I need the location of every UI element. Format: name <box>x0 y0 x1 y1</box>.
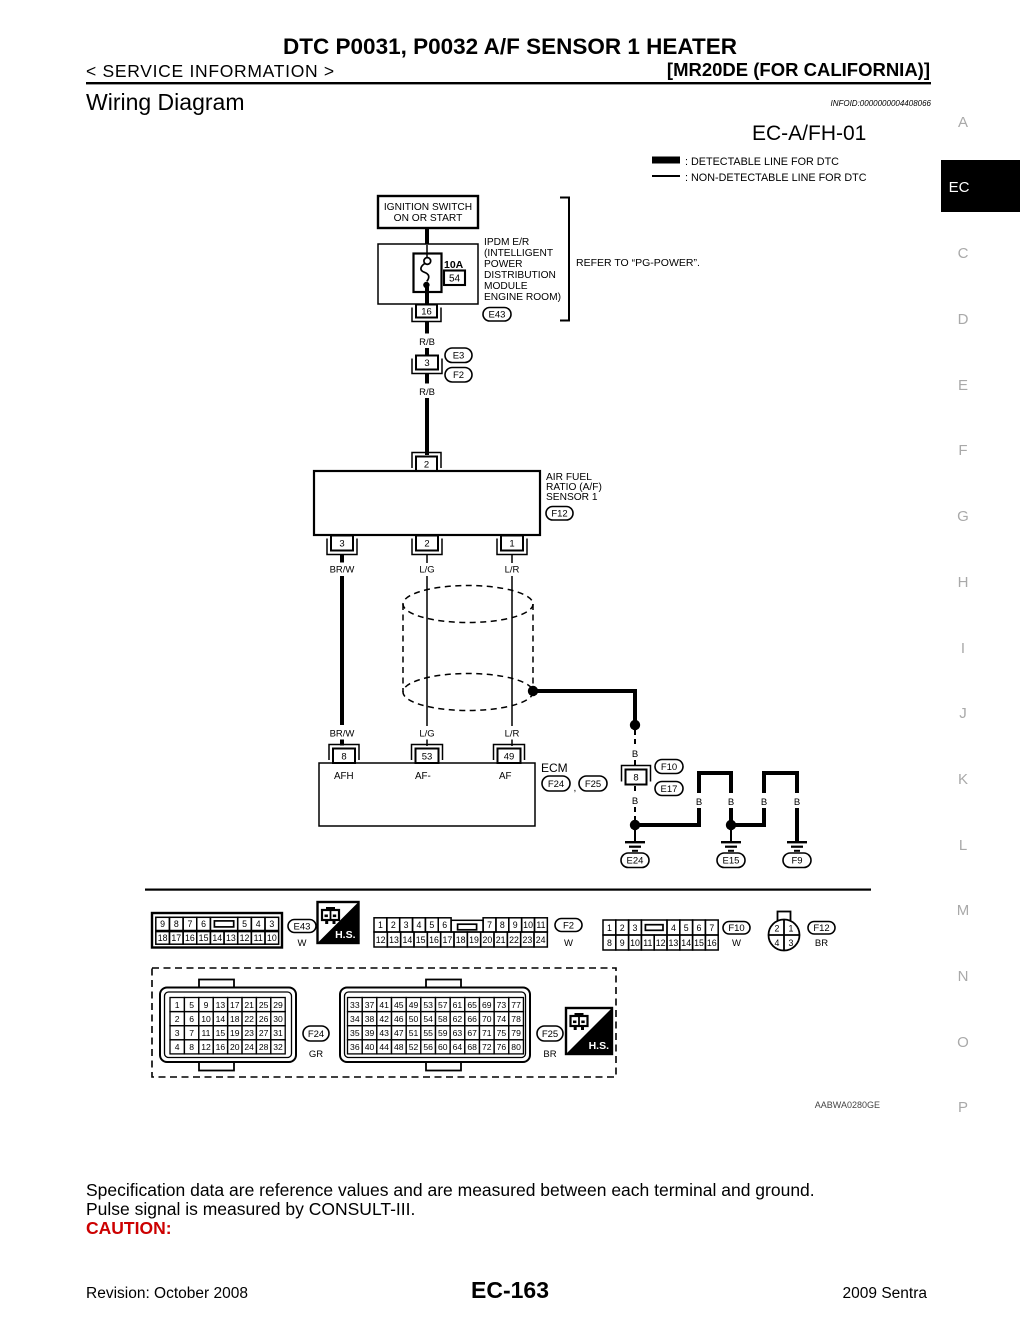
svg-text:E43: E43 <box>489 310 506 321</box>
svg-text:N: N <box>958 968 969 985</box>
svg-text:Pulse signal is measured by CO: Pulse signal is measured by CONSULT-III. <box>86 1199 415 1219</box>
svg-text:D: D <box>958 311 969 328</box>
svg-text:45: 45 <box>394 1000 404 1010</box>
svg-text:AF: AF <box>499 771 512 782</box>
svg-text:: NON-DETECTABLE LINE FOR DTC: : NON-DETECTABLE LINE FOR DTC <box>685 172 867 184</box>
svg-text:F9: F9 <box>791 856 802 867</box>
svg-text:1: 1 <box>175 1000 180 1010</box>
svg-text:10A: 10A <box>444 259 464 271</box>
svg-text:E: E <box>958 377 968 394</box>
svg-text:8: 8 <box>633 773 638 784</box>
svg-text:INFOID:0000000004408066: INFOID:0000000004408066 <box>830 99 931 108</box>
svg-text:61: 61 <box>453 1000 463 1010</box>
svg-text:7: 7 <box>487 920 492 930</box>
svg-text:56: 56 <box>423 1042 433 1052</box>
svg-text:21: 21 <box>244 1000 254 1010</box>
svg-text:55: 55 <box>423 1028 433 1038</box>
svg-text:H.S.: H.S. <box>335 929 356 941</box>
svg-text:18: 18 <box>456 935 466 945</box>
svg-text:73: 73 <box>497 1000 507 1010</box>
svg-text:6: 6 <box>697 923 702 933</box>
svg-text:1: 1 <box>789 924 794 934</box>
svg-text:5: 5 <box>429 920 434 930</box>
svg-text:77: 77 <box>511 1000 521 1010</box>
svg-text:B: B <box>632 796 638 807</box>
svg-text:5: 5 <box>684 923 689 933</box>
svg-text:23: 23 <box>522 935 532 945</box>
svg-text:2: 2 <box>391 920 396 930</box>
svg-text:27: 27 <box>259 1028 269 1038</box>
svg-text:18: 18 <box>230 1014 240 1024</box>
svg-text:9: 9 <box>620 938 625 948</box>
svg-text:12: 12 <box>201 1042 211 1052</box>
svg-text:3: 3 <box>269 919 274 929</box>
svg-text:F25: F25 <box>585 779 601 790</box>
svg-text:12: 12 <box>656 938 666 948</box>
svg-text:60: 60 <box>438 1042 448 1052</box>
svg-text:M: M <box>957 902 970 919</box>
svg-text:29: 29 <box>273 1000 283 1010</box>
svg-text:1: 1 <box>509 539 514 550</box>
svg-text:23: 23 <box>244 1028 254 1038</box>
svg-text:13: 13 <box>216 1000 226 1010</box>
svg-text:49: 49 <box>504 751 515 762</box>
svg-text:ENGINE ROOM): ENGINE ROOM) <box>484 292 561 303</box>
svg-text:19: 19 <box>469 935 479 945</box>
svg-text:F12: F12 <box>813 923 829 934</box>
svg-text:15: 15 <box>216 1028 226 1038</box>
svg-text:62: 62 <box>453 1014 463 1024</box>
svg-text:F12: F12 <box>551 509 567 520</box>
svg-text:80: 80 <box>511 1042 521 1052</box>
svg-text:10: 10 <box>267 933 277 943</box>
svg-text:41: 41 <box>379 1000 389 1010</box>
svg-text:71: 71 <box>482 1028 492 1038</box>
svg-text:2: 2 <box>620 923 625 933</box>
svg-text:11: 11 <box>254 933 263 943</box>
svg-text:6: 6 <box>442 920 447 930</box>
svg-text:F24: F24 <box>308 1029 324 1040</box>
svg-text:3: 3 <box>339 539 344 550</box>
svg-text:13: 13 <box>226 933 236 943</box>
svg-text:8: 8 <box>174 919 179 929</box>
svg-text:4: 4 <box>256 919 261 929</box>
svg-text:25: 25 <box>259 1000 269 1010</box>
svg-text:24: 24 <box>536 935 546 945</box>
svg-text:44: 44 <box>379 1042 389 1052</box>
svg-text:28: 28 <box>259 1042 269 1052</box>
svg-text:F10: F10 <box>728 923 744 934</box>
svg-text:J: J <box>959 705 967 722</box>
svg-text:< SERVICE INFORMATION >: < SERVICE INFORMATION > <box>86 61 335 81</box>
svg-text:22: 22 <box>244 1014 254 1024</box>
svg-text:DISTRIBUTION: DISTRIBUTION <box>484 270 556 281</box>
svg-text:E24: E24 <box>627 856 644 867</box>
svg-text:(INTELLIGENT: (INTELLIGENT <box>484 248 553 259</box>
svg-text:53: 53 <box>422 751 433 762</box>
svg-text:7: 7 <box>187 919 192 929</box>
svg-text:8: 8 <box>607 938 612 948</box>
svg-text:4: 4 <box>417 920 422 930</box>
svg-text:10: 10 <box>201 1014 211 1024</box>
svg-text:Revision: October 2008: Revision: October 2008 <box>86 1285 248 1302</box>
svg-text:79: 79 <box>511 1028 521 1038</box>
svg-text:2: 2 <box>424 459 429 470</box>
svg-text:CAUTION:: CAUTION: <box>86 1218 172 1238</box>
svg-text:: DETECTABLE LINE FOR DTC: : DETECTABLE LINE FOR DTC <box>685 156 839 168</box>
svg-text:9: 9 <box>160 919 165 929</box>
svg-text:K: K <box>958 771 968 788</box>
svg-text:54: 54 <box>449 274 461 285</box>
svg-text:AABWA0280GE: AABWA0280GE <box>815 1100 880 1110</box>
svg-text:GR: GR <box>309 1049 323 1060</box>
svg-text:14: 14 <box>402 935 412 945</box>
svg-text:W: W <box>564 938 573 949</box>
svg-text:40: 40 <box>365 1042 375 1052</box>
svg-text:33: 33 <box>350 1000 360 1010</box>
svg-text:20: 20 <box>230 1042 240 1052</box>
svg-text:35: 35 <box>350 1028 360 1038</box>
svg-text:9: 9 <box>204 1000 209 1010</box>
svg-text:2: 2 <box>175 1014 180 1024</box>
svg-text:57: 57 <box>438 1000 448 1010</box>
svg-text:REFER TO “PG-POWER”.: REFER TO “PG-POWER”. <box>576 257 700 269</box>
svg-text:22: 22 <box>509 935 519 945</box>
svg-text:E17: E17 <box>661 784 678 795</box>
svg-text:O: O <box>957 1034 969 1051</box>
svg-text:11: 11 <box>536 920 545 930</box>
svg-text:30: 30 <box>273 1014 283 1024</box>
svg-text:15: 15 <box>199 933 209 943</box>
svg-text:66: 66 <box>467 1014 477 1024</box>
svg-text:17: 17 <box>442 935 452 945</box>
svg-text:26: 26 <box>259 1014 269 1024</box>
svg-text:54: 54 <box>423 1014 433 1024</box>
svg-text:46: 46 <box>394 1014 404 1024</box>
svg-text:EC-163: EC-163 <box>471 1277 549 1303</box>
svg-text:5: 5 <box>189 1000 194 1010</box>
svg-text:38: 38 <box>365 1014 375 1024</box>
svg-text:58: 58 <box>438 1014 448 1024</box>
svg-text:1: 1 <box>378 920 383 930</box>
svg-text:59: 59 <box>438 1028 448 1038</box>
svg-text:14: 14 <box>212 933 222 943</box>
svg-text:64: 64 <box>453 1042 463 1052</box>
svg-text:IGNITION SWITCH: IGNITION SWITCH <box>384 202 472 213</box>
svg-text:H: H <box>958 574 969 591</box>
svg-text:R/B: R/B <box>419 337 435 348</box>
svg-text:7: 7 <box>709 923 714 933</box>
svg-text:16: 16 <box>216 1042 226 1052</box>
svg-text:MODULE: MODULE <box>484 281 528 292</box>
svg-text:6: 6 <box>189 1014 194 1024</box>
svg-text:B: B <box>794 797 800 808</box>
svg-text:31: 31 <box>273 1028 283 1038</box>
svg-text:8: 8 <box>500 920 505 930</box>
svg-text:B: B <box>728 797 734 808</box>
svg-text:B: B <box>696 797 702 808</box>
svg-text:ECM: ECM <box>541 761 568 775</box>
svg-text:15: 15 <box>416 935 426 945</box>
svg-text:L/G: L/G <box>419 565 434 576</box>
svg-text:B: B <box>632 749 638 760</box>
svg-text:13: 13 <box>669 938 679 948</box>
svg-text:16: 16 <box>421 307 432 318</box>
svg-text:10: 10 <box>523 920 533 930</box>
svg-text:43: 43 <box>379 1028 389 1038</box>
svg-text:7: 7 <box>189 1028 194 1038</box>
svg-text:24: 24 <box>244 1042 254 1052</box>
svg-text:10: 10 <box>630 938 640 948</box>
svg-text:16: 16 <box>185 933 195 943</box>
svg-text:L/G: L/G <box>419 729 434 740</box>
svg-text:20: 20 <box>482 935 492 945</box>
svg-text:3: 3 <box>789 938 794 948</box>
svg-text:76: 76 <box>497 1042 507 1052</box>
svg-text:BR: BR <box>543 1049 556 1060</box>
svg-text:65: 65 <box>467 1000 477 1010</box>
svg-text:AFH: AFH <box>334 771 354 782</box>
svg-text:F2: F2 <box>563 920 574 931</box>
svg-text:L/R: L/R <box>505 565 520 576</box>
svg-text:8: 8 <box>341 751 346 762</box>
svg-text:Specification data are referen: Specification data are reference values … <box>86 1180 815 1200</box>
svg-text:11: 11 <box>643 938 652 948</box>
svg-text:F10: F10 <box>661 762 677 773</box>
svg-text:I: I <box>961 640 965 657</box>
svg-text:50: 50 <box>409 1014 419 1024</box>
svg-text:2009 Sentra: 2009 Sentra <box>843 1285 928 1302</box>
svg-text:48: 48 <box>394 1042 404 1052</box>
svg-text:42: 42 <box>379 1014 389 1024</box>
svg-text:E43: E43 <box>294 921 311 932</box>
svg-text:L/R: L/R <box>505 729 520 740</box>
svg-text:BR/W: BR/W <box>330 565 355 576</box>
svg-text:19: 19 <box>230 1028 240 1038</box>
svg-text:3: 3 <box>633 923 638 933</box>
svg-text:BR/W: BR/W <box>330 729 355 740</box>
svg-text:Wiring Diagram: Wiring Diagram <box>86 89 244 115</box>
svg-text:32: 32 <box>273 1042 283 1052</box>
svg-text:70: 70 <box>482 1014 492 1024</box>
svg-text:47: 47 <box>394 1028 404 1038</box>
svg-text:BR: BR <box>815 938 828 949</box>
svg-text:68: 68 <box>467 1042 477 1052</box>
svg-text:15: 15 <box>694 938 704 948</box>
svg-text:R/B: R/B <box>419 387 435 398</box>
svg-text:49: 49 <box>409 1000 419 1010</box>
svg-text:16: 16 <box>707 938 717 948</box>
svg-text:L: L <box>959 837 967 854</box>
svg-text:B: B <box>761 797 767 808</box>
svg-text:F: F <box>958 442 967 459</box>
svg-text:51: 51 <box>409 1028 419 1038</box>
svg-text:E15: E15 <box>723 856 740 867</box>
svg-text:9: 9 <box>513 920 518 930</box>
svg-text:2: 2 <box>424 539 429 550</box>
svg-text:4: 4 <box>671 923 676 933</box>
svg-text:17: 17 <box>171 933 181 943</box>
svg-text:IPDM E/R: IPDM E/R <box>484 237 529 248</box>
svg-text:18: 18 <box>158 933 168 943</box>
svg-text:5: 5 <box>242 919 247 929</box>
svg-text:E3: E3 <box>453 351 465 362</box>
svg-text:13: 13 <box>389 935 399 945</box>
svg-text:14: 14 <box>681 938 691 948</box>
svg-text:P: P <box>958 1099 968 1116</box>
svg-text:2: 2 <box>775 924 780 934</box>
svg-text:75: 75 <box>497 1028 507 1038</box>
svg-text:,: , <box>574 783 577 794</box>
svg-text:DTC P0031, P0032 A/F SENSOR 1: DTC P0031, P0032 A/F SENSOR 1 HEATER <box>283 34 737 59</box>
svg-text:4: 4 <box>775 938 780 948</box>
svg-text:POWER: POWER <box>484 259 523 270</box>
svg-text:63: 63 <box>453 1028 463 1038</box>
svg-text:F24: F24 <box>548 779 564 790</box>
svg-text:[MR20DE (FOR CALIFORNIA)]: [MR20DE (FOR CALIFORNIA)] <box>667 59 930 80</box>
svg-text:G: G <box>957 508 969 525</box>
svg-text:14: 14 <box>216 1014 226 1024</box>
svg-text:1: 1 <box>607 923 612 933</box>
svg-text:3: 3 <box>424 358 429 369</box>
svg-text:39: 39 <box>365 1028 375 1038</box>
svg-text:69: 69 <box>482 1000 492 1010</box>
svg-text:A: A <box>958 114 968 131</box>
svg-text:ON OR START: ON OR START <box>394 213 463 224</box>
svg-text:53: 53 <box>423 1000 433 1010</box>
svg-text:8: 8 <box>189 1042 194 1052</box>
svg-text:W: W <box>298 938 307 949</box>
svg-text:34: 34 <box>350 1014 360 1024</box>
svg-text:78: 78 <box>511 1014 521 1024</box>
svg-text:H.S.: H.S. <box>589 1040 610 1052</box>
svg-text:37: 37 <box>365 1000 375 1010</box>
svg-text:12: 12 <box>240 933 250 943</box>
svg-text:12: 12 <box>376 935 386 945</box>
svg-text:W: W <box>732 938 741 949</box>
svg-text:36: 36 <box>350 1042 360 1052</box>
svg-text:52: 52 <box>409 1042 419 1052</box>
svg-text:17: 17 <box>230 1000 240 1010</box>
svg-text:72: 72 <box>482 1042 492 1052</box>
svg-text:EC-A/FH-01: EC-A/FH-01 <box>752 122 866 145</box>
svg-text:3: 3 <box>404 920 409 930</box>
svg-text:3: 3 <box>175 1028 180 1038</box>
svg-text:21: 21 <box>496 935 506 945</box>
svg-text:SENSOR 1: SENSOR 1 <box>546 492 598 503</box>
svg-text:EC: EC <box>949 179 970 196</box>
svg-text:F25: F25 <box>542 1029 558 1040</box>
svg-text:67: 67 <box>467 1028 477 1038</box>
svg-text:C: C <box>958 245 969 262</box>
svg-text:AF-: AF- <box>415 771 431 782</box>
svg-text:6: 6 <box>201 919 206 929</box>
svg-text:F2: F2 <box>453 370 464 381</box>
svg-text:11: 11 <box>202 1028 211 1038</box>
svg-text:16: 16 <box>429 935 439 945</box>
svg-text:74: 74 <box>497 1014 507 1024</box>
svg-text:4: 4 <box>175 1042 180 1052</box>
